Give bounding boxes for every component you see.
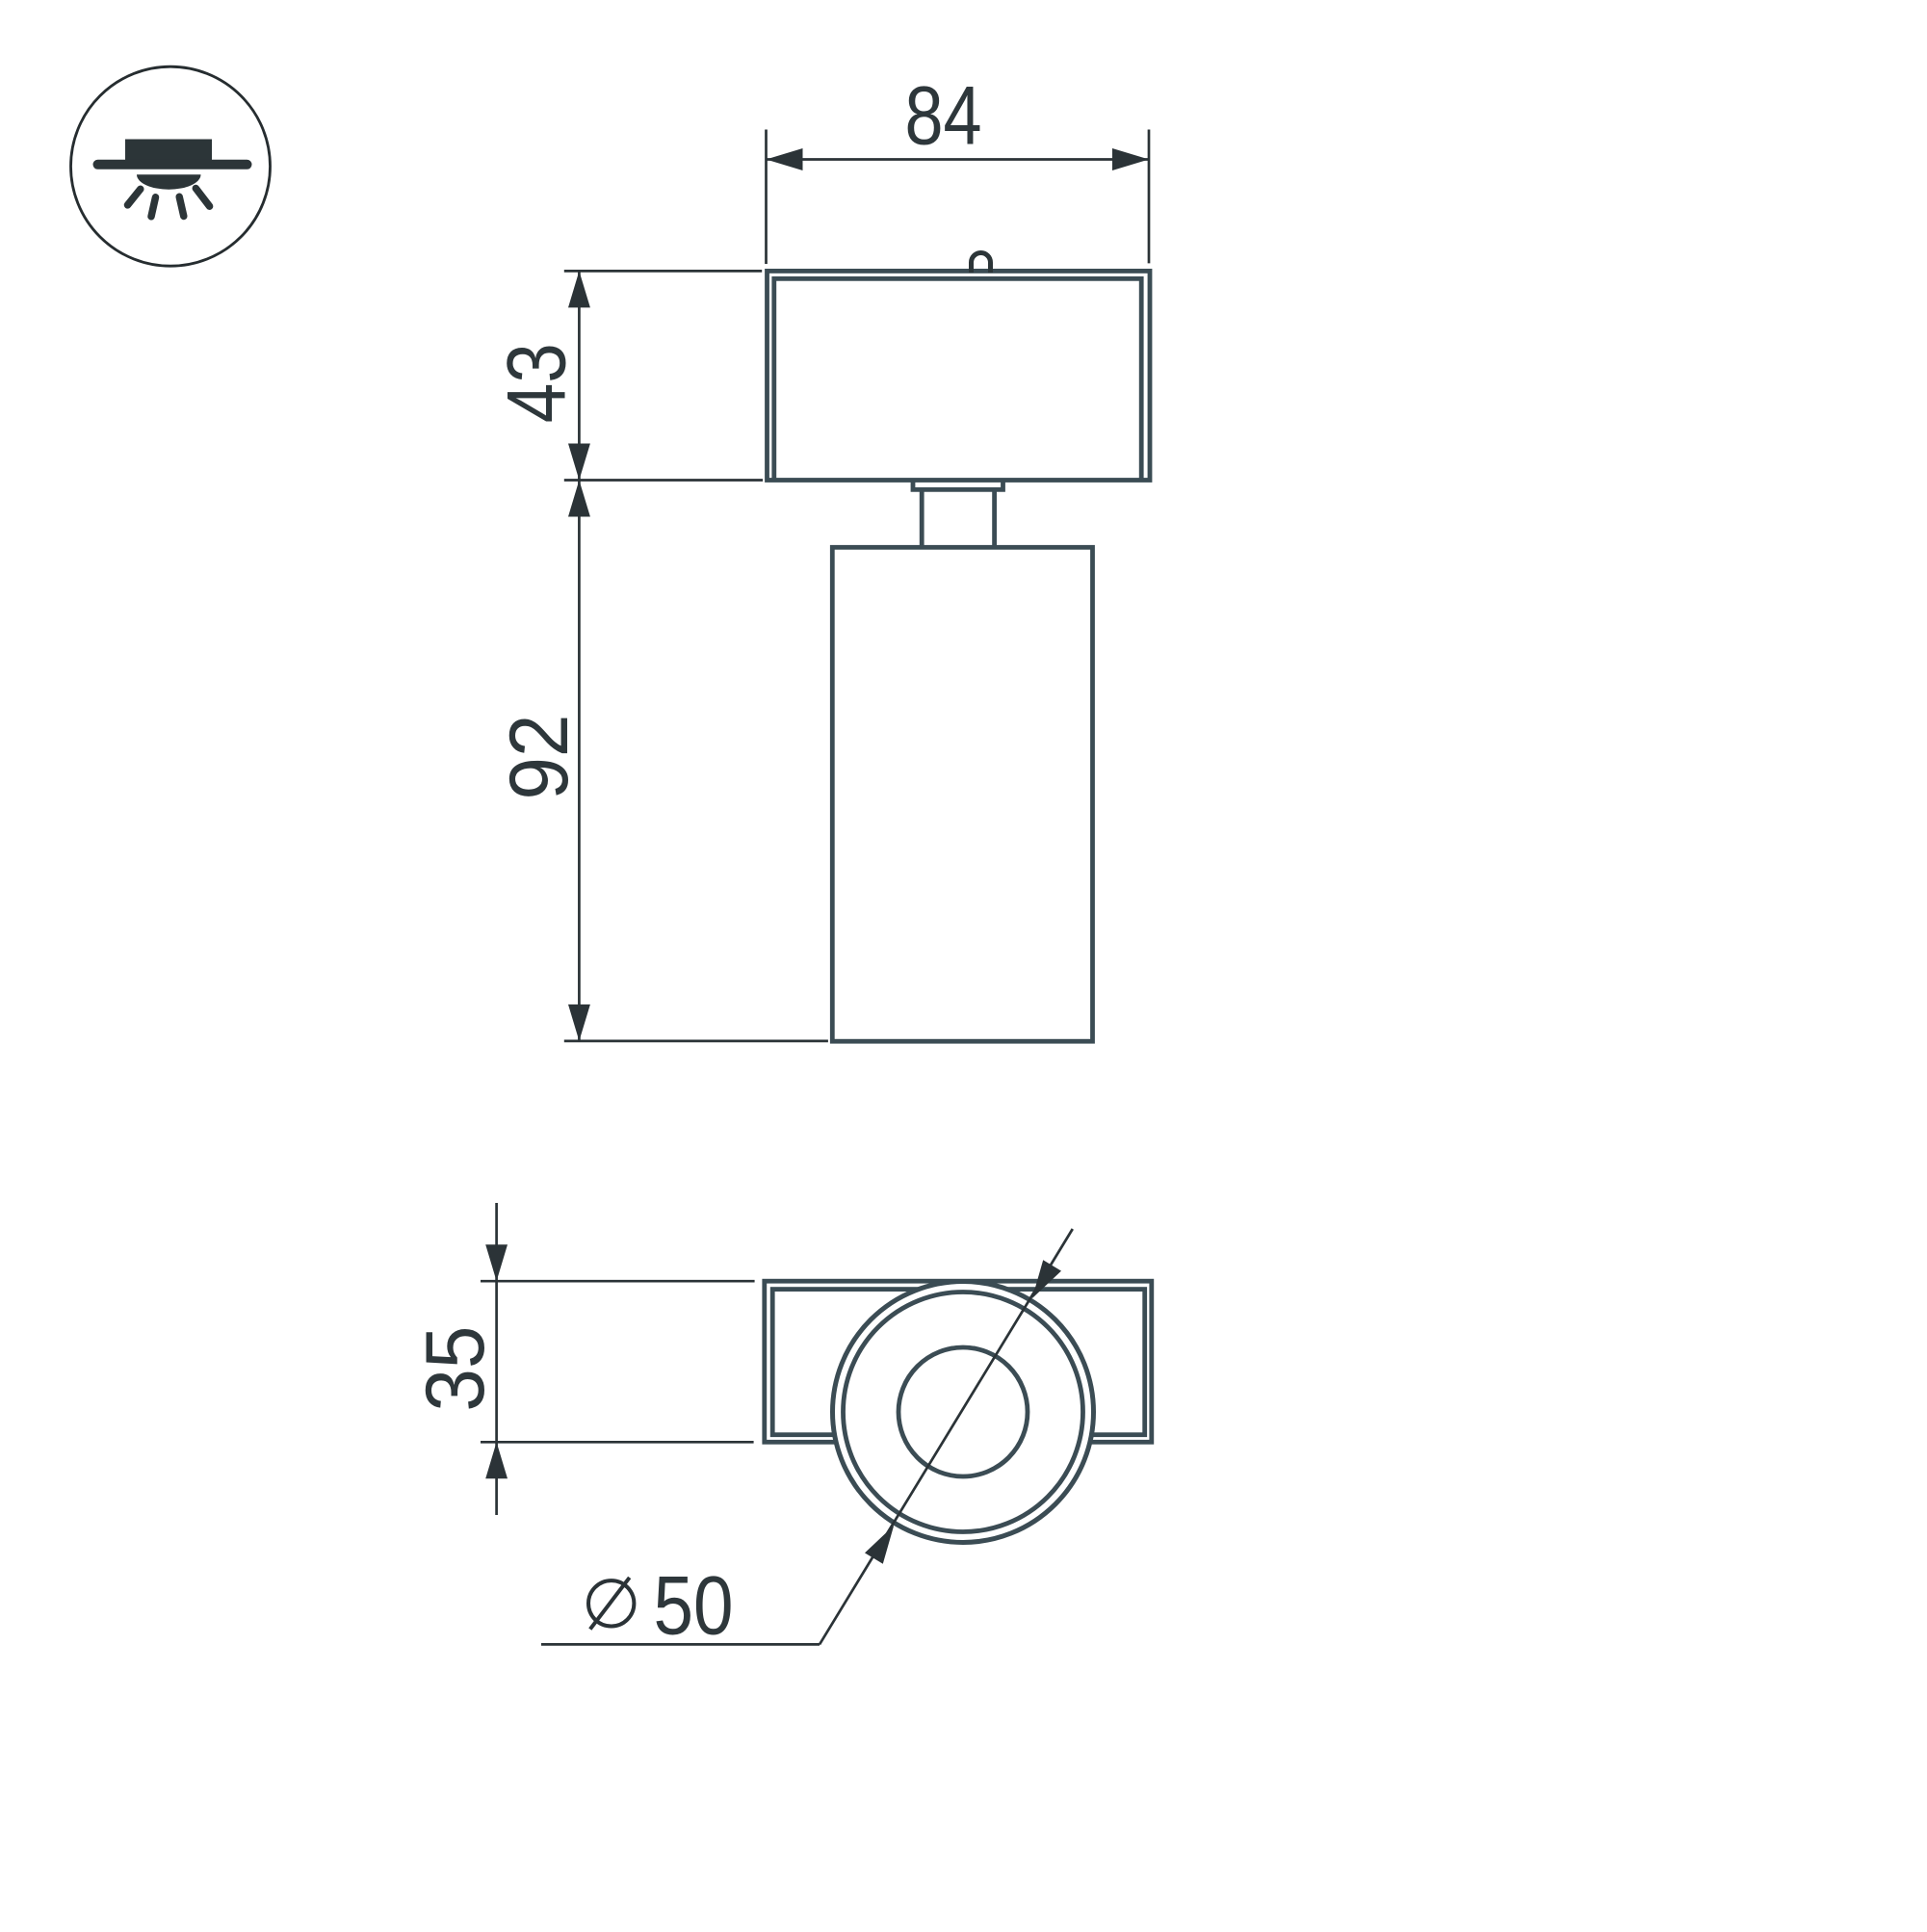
svg-text:84: 84 — [905, 69, 982, 162]
svg-text:43: 43 — [491, 343, 584, 423]
svg-text:50: 50 — [654, 1559, 734, 1652]
svg-text:35: 35 — [409, 1326, 502, 1412]
svg-text:92: 92 — [493, 715, 586, 800]
